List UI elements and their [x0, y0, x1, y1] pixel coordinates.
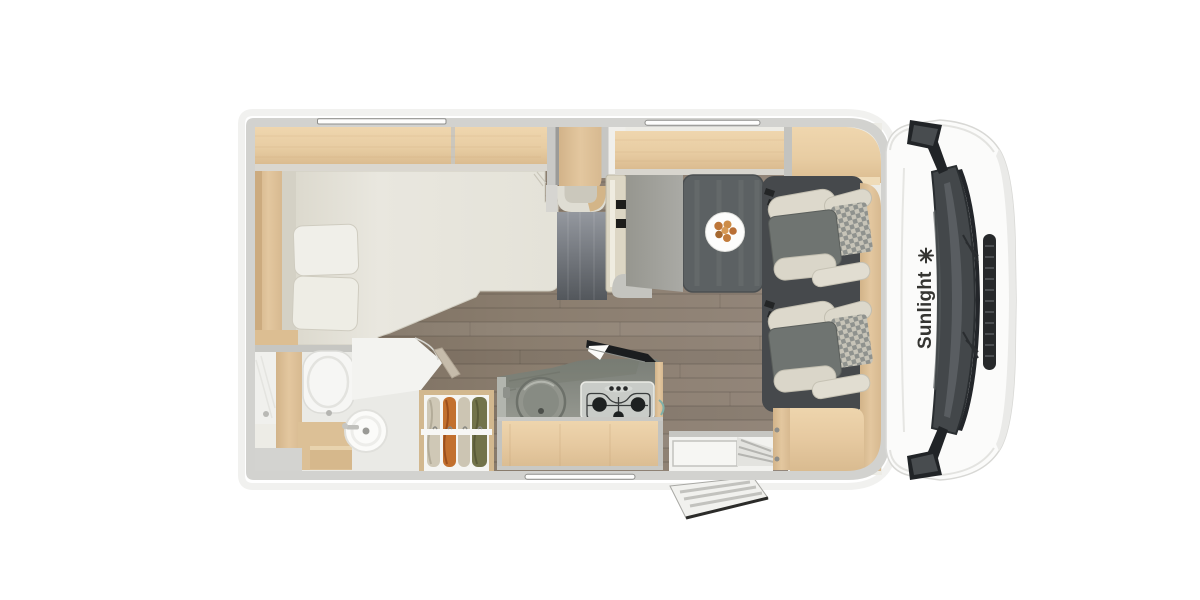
- svg-text:Sunlight: Sunlight: [915, 271, 936, 349]
